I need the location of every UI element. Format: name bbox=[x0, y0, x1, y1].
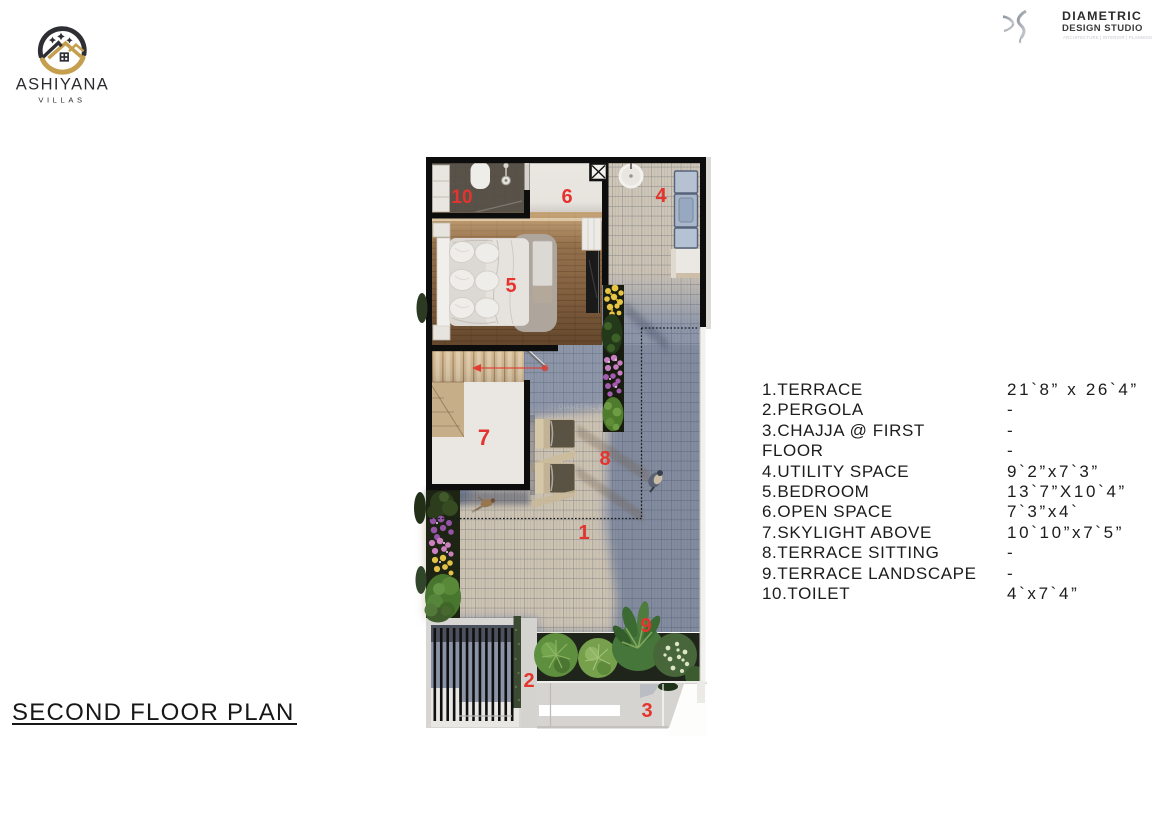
svg-text:6: 6 bbox=[561, 186, 572, 208]
svg-text:9: 9 bbox=[640, 615, 651, 637]
svg-text:7: 7 bbox=[478, 425, 490, 450]
svg-text:VILLAS: VILLAS bbox=[38, 96, 85, 105]
svg-text:DIAMETRIC: DIAMETRIC bbox=[1062, 9, 1142, 23]
svg-text:3: 3 bbox=[641, 700, 652, 722]
svg-text:10: 10 bbox=[451, 187, 472, 208]
svg-text:DESIGN STUDIO: DESIGN STUDIO bbox=[1062, 23, 1143, 34]
svg-text:5: 5 bbox=[505, 275, 516, 297]
svg-text:8: 8 bbox=[599, 448, 610, 470]
svg-text:ASHIYANA: ASHIYANA bbox=[16, 76, 109, 94]
svg-text:2: 2 bbox=[523, 670, 534, 692]
svg-text:1: 1 bbox=[578, 522, 589, 544]
svg-text:4: 4 bbox=[655, 185, 667, 207]
svg-text:ARCHITECTURE | INTERIOR | PLAN: ARCHITECTURE | INTERIOR | PLANNING bbox=[1063, 35, 1153, 40]
